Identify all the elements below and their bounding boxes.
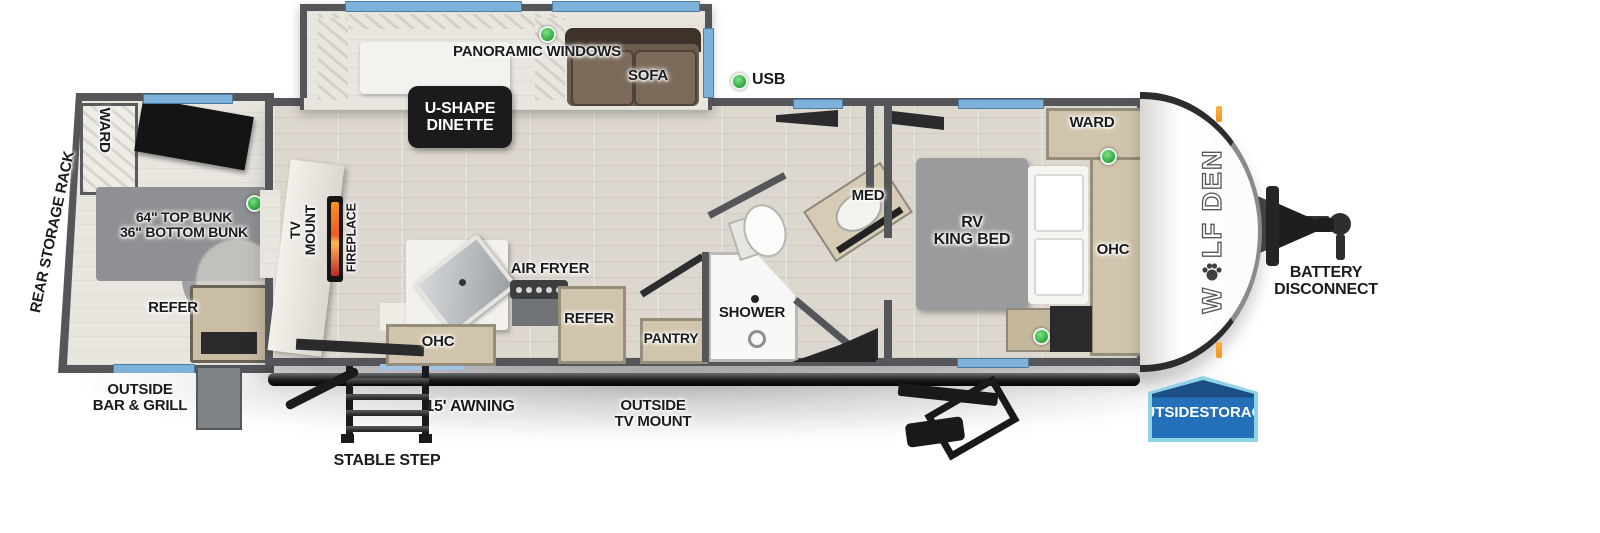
air-fryer-label: AIR FRYER xyxy=(503,261,597,277)
outside-storage-badge-inner: OUTSIDESTORAGE xyxy=(1152,380,1254,438)
stable-step xyxy=(338,366,438,450)
outside-bar-grill-label: OUTSIDEBAR & GRILL xyxy=(66,382,214,414)
shower-label: SHOWER xyxy=(705,305,799,321)
fireplace-label: FIREPLACE xyxy=(345,195,359,281)
brand-part1: W xyxy=(1197,286,1228,313)
shower-drain xyxy=(751,295,759,303)
ohc-front-label: OHC xyxy=(1086,242,1140,258)
ward-rear-label: WARD xyxy=(96,100,112,160)
bunk-top-window xyxy=(143,94,233,104)
usb-label: USB xyxy=(752,71,792,88)
fireplace-flame xyxy=(331,202,339,276)
bunk-bottom-window xyxy=(113,364,195,374)
ward-front-label: WARD xyxy=(1048,115,1136,131)
dinette-label-box: U-SHAPEDINETTE xyxy=(408,86,512,148)
bunk-label: 64" TOP BUNK36" BOTTOM BUNK xyxy=(103,210,265,240)
slideout-window-left xyxy=(345,1,522,12)
sofa-label: SOFA xyxy=(616,68,680,84)
bedroom-wall-lower xyxy=(884,300,892,360)
outside-storage-label: OUTSIDESTORAGE xyxy=(1133,404,1274,421)
pantry-label: PANTRY xyxy=(638,331,704,346)
floorplan-diagram: WARD 64" TOP BUNK36" BOTTOM BUNK REFER R… xyxy=(0,0,1600,533)
paw-icon xyxy=(1201,261,1223,283)
panoramic-led-indicator xyxy=(539,26,556,43)
range-body xyxy=(512,298,564,326)
main-top-window-1 xyxy=(793,99,843,109)
bedroom-tv-cabinet xyxy=(1050,306,1092,352)
dinette-bench-left xyxy=(318,18,348,100)
hitch-assembly xyxy=(1248,178,1368,278)
clearance-light-bottom xyxy=(1216,342,1222,358)
outside-tv-mount xyxy=(898,384,1008,464)
med-label: MED xyxy=(842,188,894,204)
slideout-side-window xyxy=(703,28,714,98)
brand-part2: LF DEN xyxy=(1197,149,1228,259)
brand-logo: W LF DEN xyxy=(1191,141,1233,321)
panoramic-windows-label: PANORAMIC WINDOWS xyxy=(442,44,632,60)
shower-faucet xyxy=(748,330,766,348)
bed-pillows xyxy=(1028,166,1088,304)
clearance-light-top xyxy=(1216,106,1222,122)
usb-led-indicator xyxy=(731,73,748,90)
bedroom-wall-upper xyxy=(884,106,892,238)
ohc-kitchen-label: OHC xyxy=(408,334,468,350)
fireplace xyxy=(327,196,343,282)
refer-rear-label: REFER xyxy=(128,300,218,316)
tv-mount-label: TVMOUNT xyxy=(288,185,318,275)
bunk-bed-footboard xyxy=(201,332,257,354)
bench-led-indicator xyxy=(1033,328,1050,345)
slideout-window-right xyxy=(552,1,700,12)
outside-tv-mount-label: OUTSIDETV MOUNT xyxy=(580,398,726,430)
sink-drain xyxy=(459,279,466,286)
dinette-bench-back xyxy=(318,14,565,29)
king-bed-label: RVKING BED xyxy=(920,214,1024,249)
dinette-label: U-SHAPEDINETTE xyxy=(425,100,496,135)
refer-kitchen-label: REFER xyxy=(559,311,619,327)
bar-grill-door xyxy=(196,366,242,430)
bath-wall-vertical-right xyxy=(866,106,874,188)
bedroom-bottom-window xyxy=(957,358,1029,368)
ward-led-indicator xyxy=(1100,148,1117,165)
bunk-room-bed xyxy=(190,285,270,363)
stable-step-label: STABLE STEP xyxy=(314,452,460,469)
bedroom-top-window xyxy=(958,99,1044,109)
